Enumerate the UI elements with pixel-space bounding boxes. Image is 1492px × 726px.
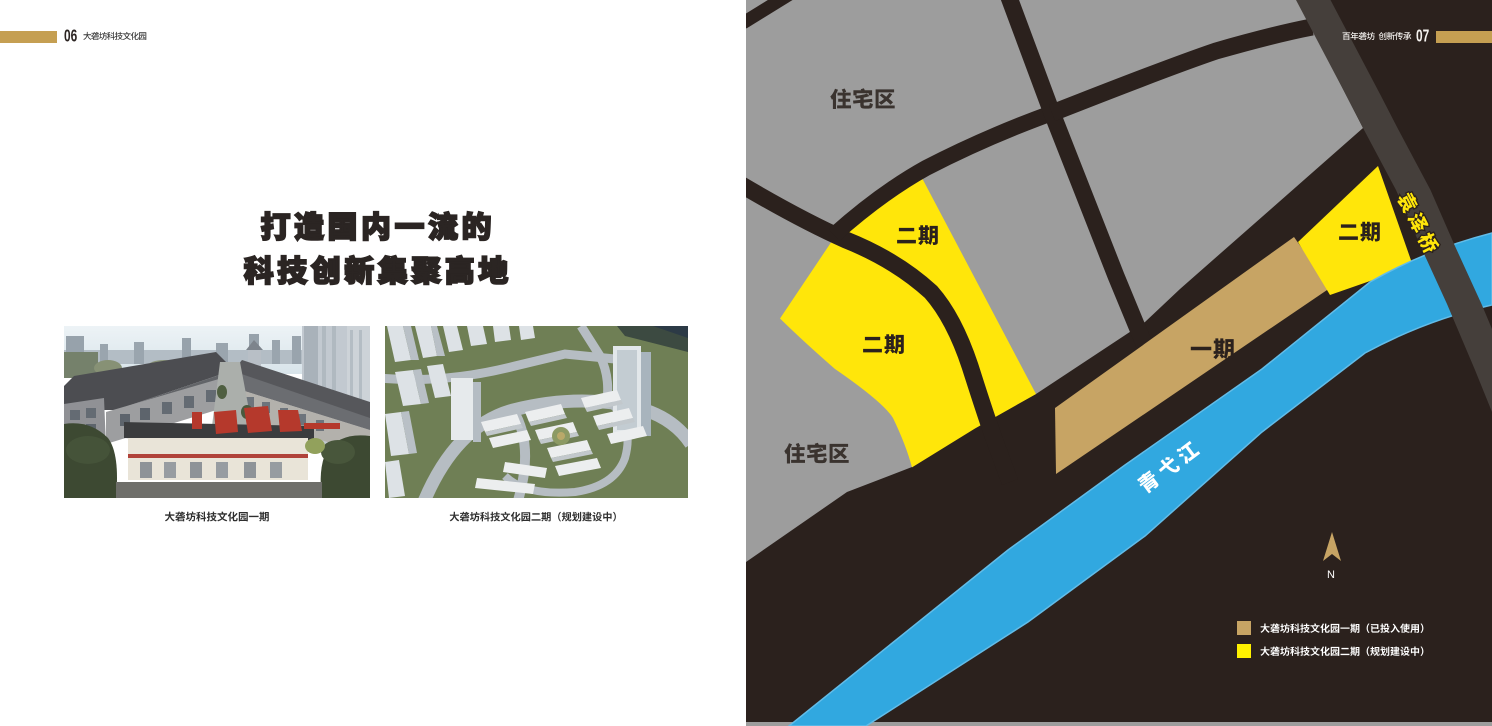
svg-text:N: N: [1327, 569, 1335, 581]
svg-text:07: 07: [1416, 26, 1429, 46]
